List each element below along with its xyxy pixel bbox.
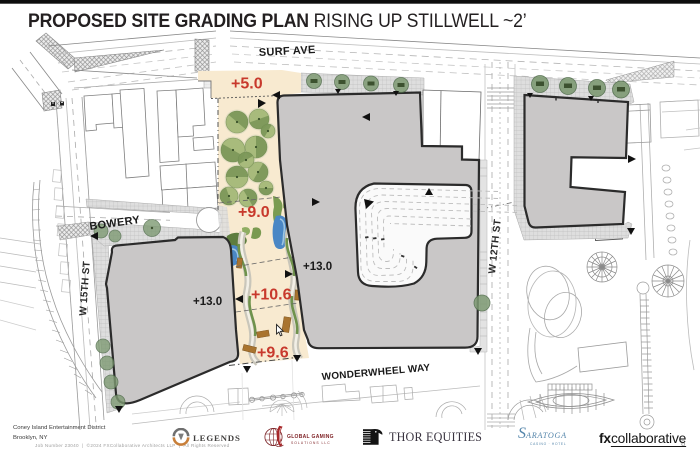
svg-text:+9.0: +9.0 (238, 204, 270, 221)
svg-text:+10.6: +10.6 (251, 287, 292, 304)
svg-text:+13.0: +13.0 (193, 296, 222, 308)
svg-text:+5.0: +5.0 (231, 76, 263, 93)
svg-text:+9.6: +9.6 (257, 345, 289, 362)
svg-text:+13.0: +13.0 (303, 261, 332, 273)
